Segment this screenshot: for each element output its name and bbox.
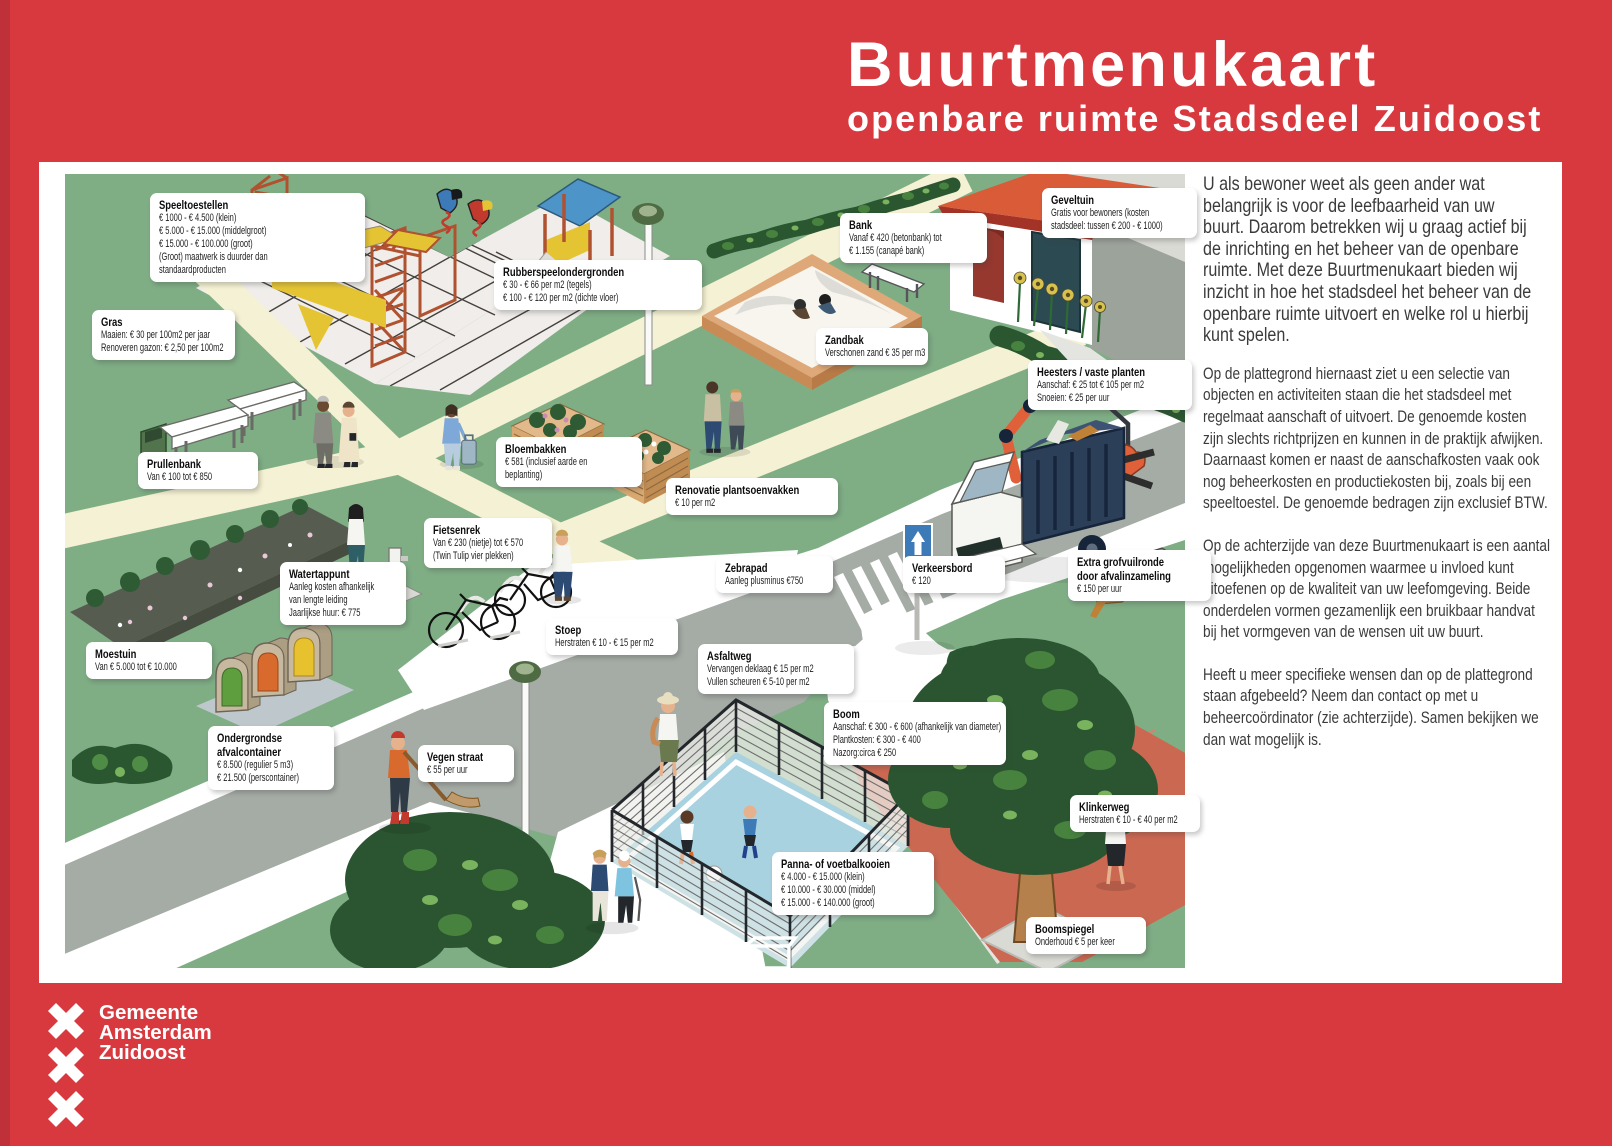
svg-text:Zuidoost: Zuidoost (99, 1041, 186, 1064)
